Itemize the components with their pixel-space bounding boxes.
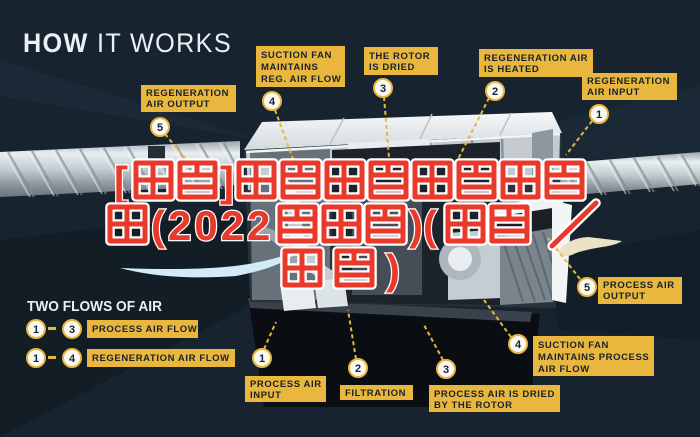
svg-text:3: 3 (380, 83, 386, 95)
svg-text:]: ] (220, 158, 234, 205)
svg-text:MAINTAINS: MAINTAINS (261, 62, 318, 73)
svg-text:MAINTAINS PROCESS: MAINTAINS PROCESS (538, 352, 649, 363)
svg-text:REG. AIR FLOW: REG. AIR FLOW (261, 74, 341, 85)
svg-text:(2022: (2022 (151, 202, 273, 249)
svg-text:1: 1 (596, 109, 602, 121)
svg-text:SUCTION FAN: SUCTION FAN (261, 50, 332, 61)
svg-text:PROCESS AIR IS DRIED: PROCESS AIR IS DRIED (434, 389, 555, 400)
svg-text:THE ROTOR: THE ROTOR (369, 51, 430, 62)
svg-text:2: 2 (492, 86, 498, 98)
svg-text:3: 3 (443, 364, 449, 376)
svg-text:REGENERATION AIR FLOW: REGENERATION AIR FLOW (92, 353, 230, 364)
svg-text:PROCESS AIR: PROCESS AIR (250, 379, 322, 390)
svg-text:REGENERATION: REGENERATION (587, 76, 670, 87)
svg-text:4: 4 (69, 353, 76, 365)
svg-text:5: 5 (157, 122, 163, 134)
svg-text:1: 1 (33, 353, 39, 365)
svg-text:REGENERATION AIR: REGENERATION AIR (484, 53, 588, 64)
svg-text:REGENERATION: REGENERATION (146, 88, 229, 99)
svg-text:AIR INPUT: AIR INPUT (587, 87, 640, 98)
svg-text:AIR FLOW: AIR FLOW (538, 364, 590, 375)
svg-text:BY THE ROTOR: BY THE ROTOR (434, 400, 513, 411)
svg-text:3: 3 (69, 324, 75, 336)
svg-text:INPUT: INPUT (250, 390, 282, 401)
svg-text:)(: )( (409, 202, 437, 249)
svg-text:4: 4 (269, 96, 276, 108)
svg-text:PROCESS AIR FLOW: PROCESS AIR FLOW (92, 324, 197, 335)
svg-text:IS DRIED: IS DRIED (369, 62, 415, 73)
svg-text:FILTRATION: FILTRATION (345, 388, 406, 399)
svg-text:): ) (386, 246, 400, 293)
svg-text:OUTPUT: OUTPUT (603, 291, 646, 302)
svg-text:2: 2 (355, 363, 361, 375)
svg-text:TWO FLOWS OF AIR: TWO FLOWS OF AIR (27, 298, 162, 315)
svg-text:SUCTION FAN: SUCTION FAN (538, 340, 609, 351)
svg-text:5: 5 (584, 282, 590, 294)
svg-text:1: 1 (259, 353, 265, 365)
svg-text:HOW IT WORKS: HOW IT WORKS (23, 28, 232, 58)
svg-text:1: 1 (33, 324, 39, 336)
svg-text:4: 4 (515, 339, 522, 351)
svg-text:[: [ (114, 158, 128, 205)
svg-text:PROCESS AIR: PROCESS AIR (603, 280, 675, 291)
svg-text:IS HEATED: IS HEATED (484, 64, 539, 75)
svg-text:AIR OUTPUT: AIR OUTPUT (146, 99, 210, 110)
